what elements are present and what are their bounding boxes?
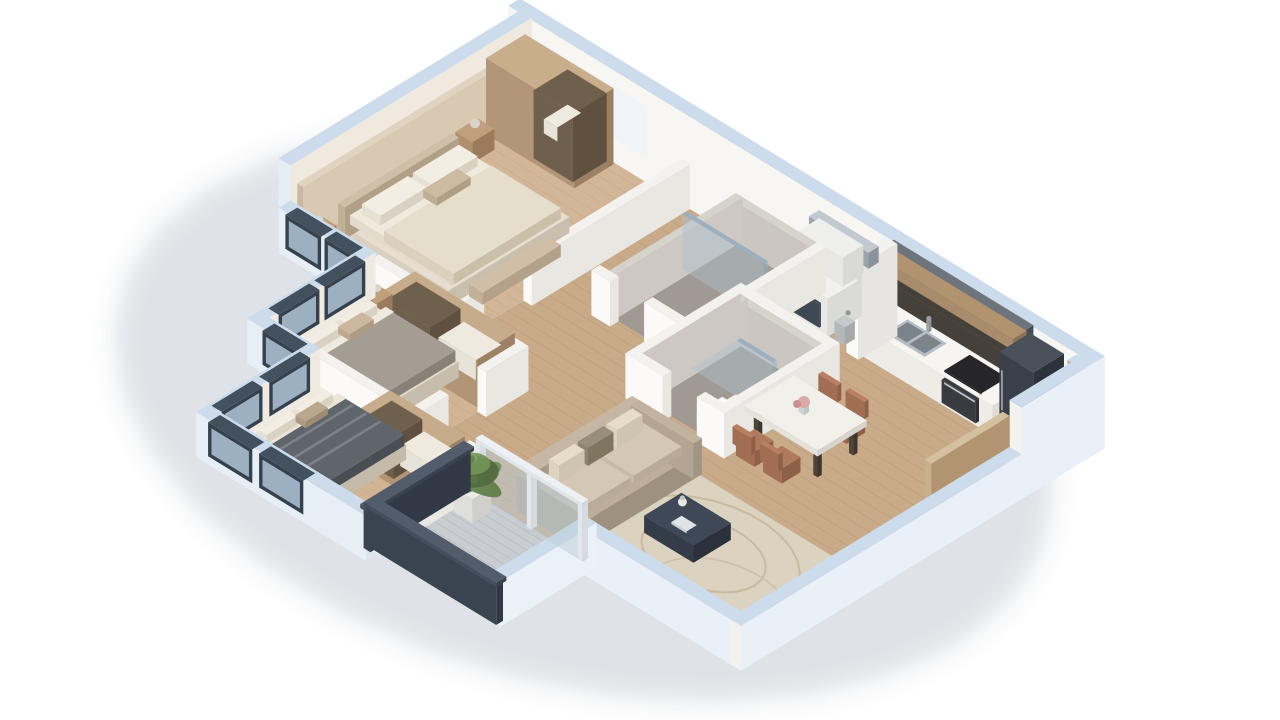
floor-plan-3d-render <box>0 0 1280 720</box>
kitchen-faucet-head <box>926 316 931 321</box>
floor-plan-canvas <box>0 0 1280 720</box>
fridge-handle <box>1001 370 1003 411</box>
bath1-south-wall-west <box>591 265 618 327</box>
dining-flowers-2 <box>793 400 801 408</box>
plant-frond-3 <box>470 476 478 484</box>
vacuum-handle <box>846 310 851 315</box>
bedroom1-lamp-north <box>470 118 480 128</box>
vacuum-cleaner <box>835 315 855 345</box>
coffee-table-vase-top <box>680 495 685 500</box>
